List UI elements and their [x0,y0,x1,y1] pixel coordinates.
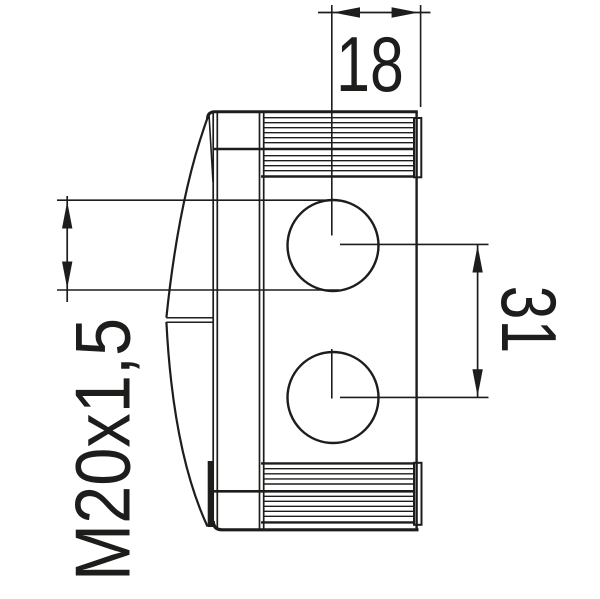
dimension-label-m20: M20x1,5 [58,318,146,581]
dimension-label-31: 31 [485,286,572,354]
dimension-entry-spacing: 31 [472,244,572,397]
rib-block-top [261,118,421,178]
arrowhead-down [62,262,72,289]
lid-dome [166,114,213,527]
dome-arc-lower [166,322,207,527]
rib-block-bottom [261,463,422,525]
enclosure-body [208,112,419,530]
arrowhead-right [392,7,419,17]
arrowhead-up [62,202,72,229]
dimension-entry-offset: 18 [318,5,431,108]
drawing-svg: 18 M20x1,5 31 [0,0,600,599]
dimension-label-18: 18 [336,21,404,108]
cable-entry-hole-1 [288,200,379,291]
dome-arc-upper [166,118,207,318]
arrowhead-left [333,7,360,17]
technical-drawing-canvas: 18 M20x1,5 31 [0,0,600,599]
arrowhead-down [472,369,482,396]
arrowhead-up [472,246,482,273]
